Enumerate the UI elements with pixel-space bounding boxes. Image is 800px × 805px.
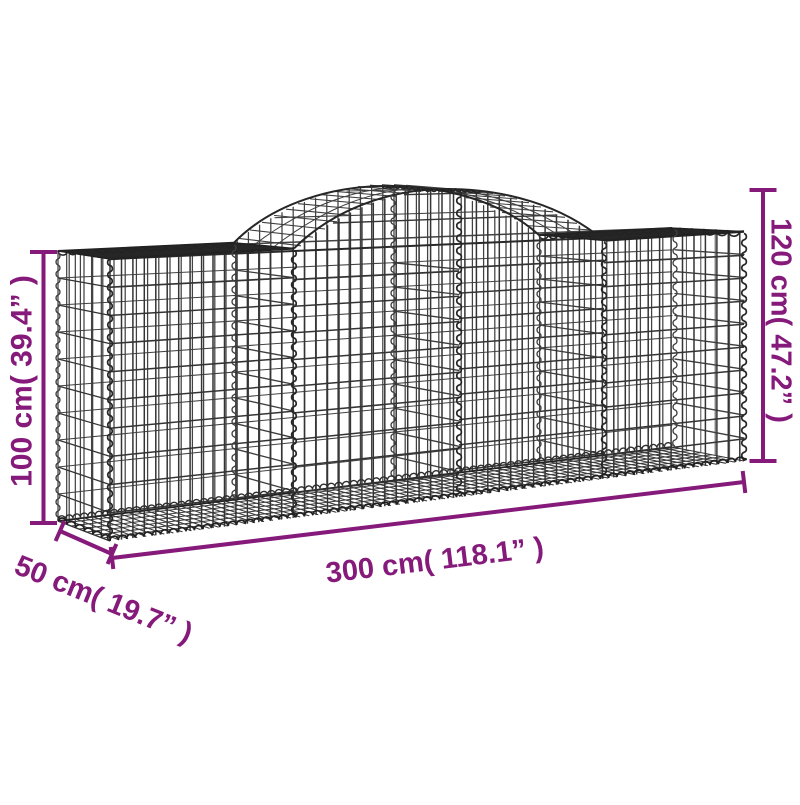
svg-text:120 cm( 47.2” ): 120 cm( 47.2” ): [764, 218, 796, 423]
svg-text:100 cm( 39.4” ): 100 cm( 39.4” ): [5, 275, 38, 487]
